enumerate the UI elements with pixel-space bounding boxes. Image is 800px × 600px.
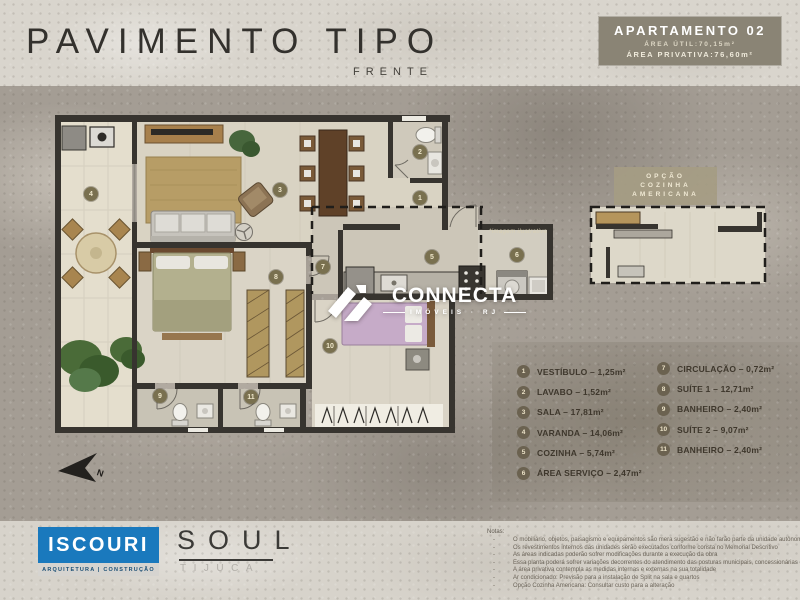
- legend-label: BANHEIRO – 2,40m²: [677, 404, 762, 414]
- legend-column-2: 7CIRCULAÇÃO – 0,72m² 8SUÍTE 1 – 12,71m² …: [657, 362, 774, 463]
- legend-label: BANHEIRO – 2,40m²: [677, 445, 762, 455]
- american-kitchen-option-label: OPÇÃO COZINHA AMERICANA: [614, 167, 717, 205]
- tagline-rule: [504, 312, 526, 314]
- illustrative-image-note: *imagem ilustrativa: [489, 229, 547, 235]
- island-counter: [614, 230, 672, 238]
- sink: [618, 266, 644, 277]
- apartment-badge: APARTAMENTO 02 ÁREA ÚTIL:70,15m² ÁREA PR…: [599, 17, 781, 65]
- plan-marker-10: 10: [323, 339, 337, 353]
- toilet: [173, 404, 187, 421]
- legend-num-badge: 5: [517, 446, 530, 459]
- soul-tagline: TIJUCA: [180, 563, 260, 574]
- note-line: Ar condicionado: Previsão para a instala…: [487, 575, 793, 583]
- legend-num-badge: 11: [657, 443, 670, 456]
- option-mini-plan: [591, 207, 765, 283]
- private-area: ÁREA PRIVATIVA:76,60m²: [599, 50, 781, 59]
- legend-label: CIRCULAÇÃO – 0,72m²: [677, 364, 774, 374]
- legend-item: 6ÁREA SERVIÇO – 2,47m²: [517, 466, 642, 480]
- watermark-tagline: IMÓVEIS · RJ: [410, 309, 499, 316]
- notes-title: Notas:: [487, 529, 793, 535]
- option-line2: COZINHA: [614, 181, 717, 190]
- apartment-number: APARTAMENTO 02: [599, 23, 781, 38]
- note-line: Essa planta poderá sofrer variações deco…: [487, 560, 793, 568]
- front-orientation-label: FRENTE: [353, 66, 433, 78]
- note-line: A área privativa contempla as medidas in…: [487, 567, 793, 575]
- iscouri-tagline-bar: ARQUITETURA | CONSTRUÇÃO: [38, 563, 159, 576]
- note-line: O mobiliário, objetos, paisagismo e equi…: [487, 537, 793, 545]
- legend-item: 7CIRCULAÇÃO – 0,72m²: [657, 362, 774, 376]
- toilet: [256, 404, 270, 421]
- toilet: [416, 128, 436, 143]
- plan-marker-7: 7: [316, 260, 330, 274]
- legend-num-badge: 4: [517, 426, 530, 439]
- connecta-watermark: CONNECTA IMÓVEIS · RJ: [326, 275, 526, 325]
- fan: [236, 224, 253, 241]
- legend-label: SALA – 17,81m²: [537, 407, 604, 417]
- legend-item: 10SUÍTE 2 – 9,07m²: [657, 423, 774, 437]
- legend-label: VARANDA – 14,06m²: [537, 428, 623, 438]
- plan-marker-1: 1: [413, 191, 427, 205]
- north-arrow-icon: [58, 453, 97, 482]
- note-line: As áreas indicadas poderão sofrer modifi…: [487, 552, 793, 560]
- note-line: Os revestimentos internos das unidades s…: [487, 545, 793, 553]
- legend-item: 4VARANDA – 14,06m²: [517, 426, 642, 440]
- soul-logo: SOUL: [177, 525, 303, 556]
- legend-label: LAVABO – 1,52m²: [537, 387, 611, 397]
- legend-label: ÁREA SERVIÇO – 2,47m²: [537, 468, 642, 478]
- watermark-name: CONNECTA: [392, 284, 517, 308]
- option-line1: OPÇÃO: [614, 172, 717, 181]
- plan-marker-3: 3: [273, 183, 287, 197]
- legend-label: VESTÍBULO – 1,25m²: [537, 367, 626, 377]
- plan-marker-9: 9: [153, 389, 167, 403]
- legend-num-badge: 10: [657, 423, 670, 436]
- note-line: Opção Cozinha Americana: Consultar custo…: [487, 583, 793, 591]
- useful-area: ÁREA ÚTIL:70,15m²: [599, 41, 781, 48]
- legend-num-badge: 2: [517, 386, 530, 399]
- wardrobe: [286, 290, 304, 377]
- legend-item: 5COZINHA – 5,74m²: [517, 446, 642, 460]
- counter: [596, 212, 640, 224]
- legend-column-1: 1VESTÍBULO – 1,25m² 2LAVABO – 1,52m² 3SA…: [517, 365, 642, 487]
- plan-marker-4: 4: [84, 187, 98, 201]
- iscouri-tagline: ARQUITETURA | CONSTRUÇÃO: [42, 567, 155, 573]
- legend-label: SUÍTE 2 – 9,07m²: [677, 425, 749, 435]
- plan-marker-11: 11: [244, 390, 258, 404]
- cabinet: [62, 126, 86, 150]
- sofa: [151, 211, 235, 243]
- legend-num-badge: 9: [657, 403, 670, 416]
- legend-item: 9BANHEIRO – 2,40m²: [657, 403, 774, 417]
- plan-marker-8: 8: [269, 270, 283, 284]
- legend-item: 11BANHEIRO – 2,40m²: [657, 443, 774, 457]
- legend-label: COZINHA – 5,74m²: [537, 448, 615, 458]
- soul-divider: [179, 559, 273, 561]
- dining-table: [300, 130, 364, 216]
- legend-item: 2LAVABO – 1,52m²: [517, 385, 642, 399]
- floorplan-poster: PAVIMENTO TIPO FRENTE APARTAMENTO 02 ÁRE…: [0, 0, 800, 600]
- iscouri-name: ISCOURI: [48, 534, 149, 557]
- legend-num-badge: 8: [657, 383, 670, 396]
- legend-label: SUÍTE 1 – 12,71m²: [677, 384, 754, 394]
- tagline-rule: [383, 312, 405, 314]
- legend-item: 8SUÍTE 1 – 12,71m²: [657, 382, 774, 396]
- plan-marker-2: 2: [413, 145, 427, 159]
- nightstand: [233, 252, 245, 271]
- option-line3: AMERICANA: [614, 190, 717, 199]
- page-title: PAVIMENTO TIPO: [26, 22, 443, 62]
- legend-num-badge: 1: [517, 365, 530, 378]
- bed-bench: [162, 333, 222, 340]
- plan-marker-6: 6: [510, 248, 524, 262]
- legend-num-badge: 3: [517, 406, 530, 419]
- notes-block: Notas: O mobiliário, objetos, paisagismo…: [487, 529, 793, 590]
- plan-marker-5: 5: [425, 250, 439, 264]
- iscouri-logo: ISCOURI: [38, 527, 159, 563]
- legend-item: 3SALA – 17,81m²: [517, 406, 642, 420]
- legend-num-badge: 7: [657, 362, 670, 375]
- nightstand: [139, 252, 151, 271]
- legend-item: 1VESTÍBULO – 1,25m²: [517, 365, 642, 379]
- legend-num-badge: 6: [517, 467, 530, 480]
- connecta-logo-icon: [326, 275, 376, 325]
